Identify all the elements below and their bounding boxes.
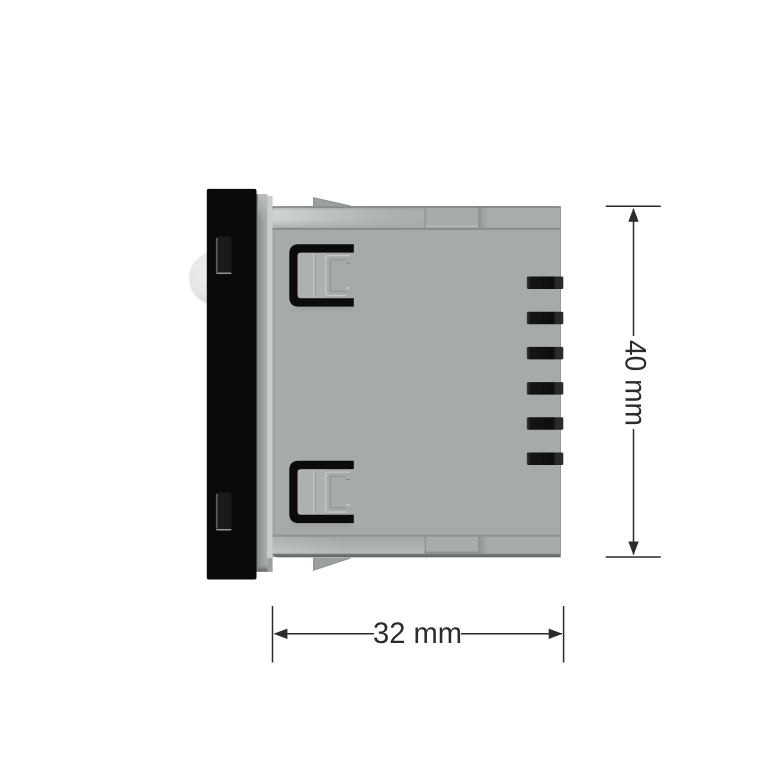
svg-text:32 mm: 32 mm <box>373 617 462 650</box>
svg-text:40 mm: 40 mm <box>619 340 652 426</box>
